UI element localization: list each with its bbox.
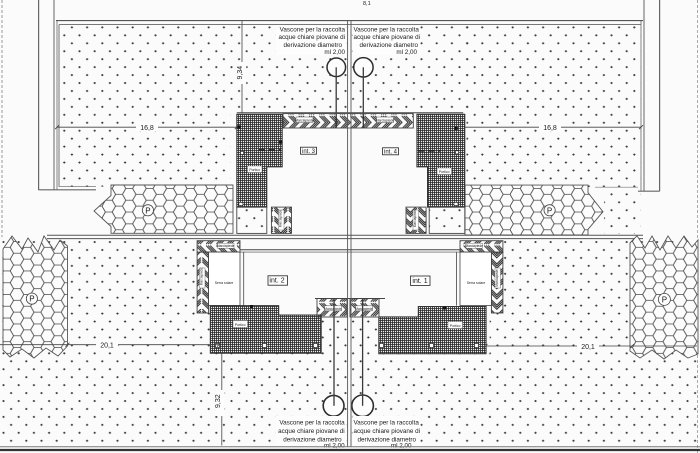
- svg-text:acque chiare piovane di: acque chiare piovane di: [354, 428, 421, 435]
- svg-text:20,1: 20,1: [581, 344, 595, 351]
- svg-text:Vascone per la raccolta: Vascone per la raccolta: [354, 420, 420, 427]
- svg-text:int. 3: int. 3: [302, 149, 316, 155]
- svg-text:Vascone per la raccolta: Vascone per la raccolta: [280, 27, 346, 34]
- svg-text:ml 2,00: ml 2,00: [324, 49, 345, 56]
- svg-text:acque chiare piovane di: acque chiare piovane di: [278, 34, 345, 41]
- svg-text:P: P: [547, 206, 552, 215]
- svg-text:9,32: 9,32: [215, 394, 222, 408]
- svg-text:P: P: [145, 206, 150, 215]
- svg-text:8,1: 8,1: [363, 1, 371, 7]
- svg-text:Marciapiede: Marciapiede: [376, 118, 395, 122]
- svg-text:Marciapiede: Marciapiede: [495, 269, 499, 287]
- svg-text:acque chiare piovane di: acque chiare piovane di: [278, 428, 345, 435]
- svg-text:Vascone per la raccolta: Vascone per la raccolta: [354, 27, 420, 34]
- svg-text:20,1: 20,1: [100, 343, 114, 350]
- svg-text:16,8: 16,8: [140, 125, 154, 132]
- svg-text:int. 4: int. 4: [384, 150, 398, 156]
- svg-text:Marciapiede: Marciapiede: [324, 307, 342, 311]
- svg-text:derivazione diametro: derivazione diametro: [284, 42, 343, 49]
- svg-text:Marciapiede: Marciapiede: [199, 268, 203, 286]
- svg-text:Portico: Portico: [249, 168, 260, 172]
- svg-text:Portico: Portico: [439, 170, 450, 174]
- svg-text:Marciapiede: Marciapiede: [355, 307, 373, 311]
- svg-text:int. 1: int. 1: [412, 278, 427, 285]
- svg-text:Marciapiede: Marciapiede: [278, 210, 282, 228]
- svg-text:Portico: Portico: [235, 323, 246, 327]
- svg-text:16,8: 16,8: [543, 125, 557, 132]
- svg-text:9,34: 9,34: [237, 66, 244, 80]
- svg-text:ml 2,00: ml 2,00: [391, 443, 412, 450]
- svg-text:Marciapiede: Marciapiede: [217, 244, 235, 248]
- svg-text:ml 2,00: ml 2,00: [396, 49, 417, 56]
- svg-text:int. 2: int. 2: [269, 278, 284, 285]
- svg-text:Marciapiede: Marciapiede: [466, 244, 484, 248]
- svg-text:Serra solare: Serra solare: [467, 281, 486, 285]
- svg-text:P: P: [662, 295, 667, 304]
- svg-text:Marciapiede: Marciapiede: [413, 210, 417, 228]
- svg-text:Portico: Portico: [450, 324, 461, 328]
- svg-text:derivazione diametro: derivazione diametro: [360, 42, 419, 49]
- svg-text:ml 2,00: ml 2,00: [324, 443, 345, 450]
- svg-text:Vascone per la raccolta: Vascone per la raccolta: [279, 420, 345, 427]
- svg-text:acque chiare piovane di: acque chiare piovane di: [354, 34, 421, 41]
- svg-text:Serra solare: Serra solare: [215, 281, 234, 285]
- svg-text:Marciapiede: Marciapiede: [295, 118, 314, 122]
- svg-text:P: P: [29, 295, 34, 304]
